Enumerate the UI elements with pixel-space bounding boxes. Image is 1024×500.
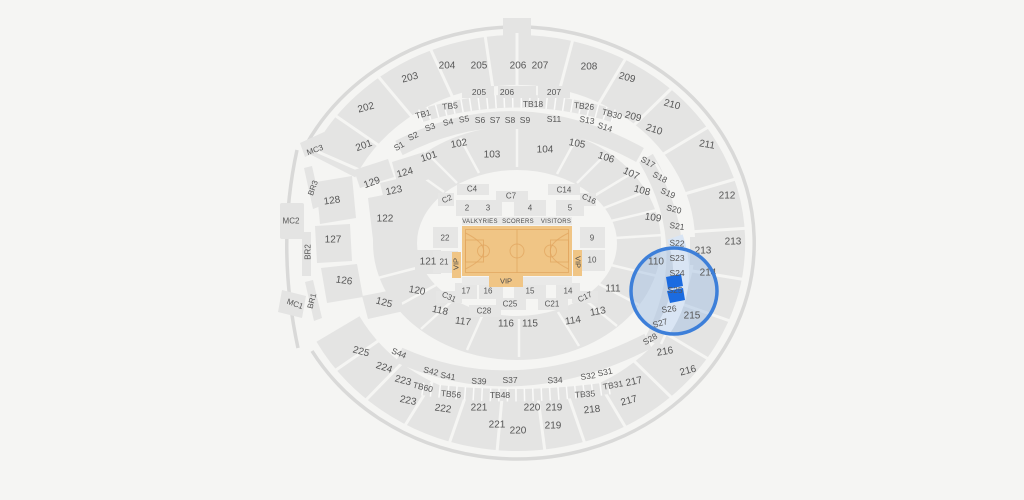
label-s34[interactable]: S34 [547,375,563,386]
label-s26[interactable]: S26 [661,303,677,315]
label-215[interactable]: 215 [684,311,701,322]
label-220-small[interactable]: 220 [524,403,541,414]
label-116[interactable]: 116 [498,319,514,330]
label-floor-5[interactable]: 5 [568,204,573,213]
label-221-small[interactable]: 221 [471,403,488,414]
label-s11[interactable]: S11 [547,114,562,124]
label-s24[interactable]: S24 [669,268,684,278]
label-br2[interactable]: BR2 [304,244,313,260]
label-206-outer[interactable]: 206 [510,61,527,72]
label-c21[interactable]: C21 [545,300,560,309]
label-110[interactable]: 110 [648,257,664,268]
label-205-inner[interactable]: 205 [472,87,486,97]
label-219-small[interactable]: 219 [546,403,563,414]
label-121[interactable]: 121 [420,257,437,268]
label-111[interactable]: 111 [605,284,621,295]
label-mc2[interactable]: MC2 [283,217,300,226]
label-s41[interactable]: S41 [440,370,457,383]
label-floor-22[interactable]: 22 [441,234,450,243]
label-205-outer[interactable]: 205 [471,61,488,72]
label-c14[interactable]: C14 [557,186,572,195]
label-floor-16[interactable]: 16 [484,287,493,296]
label-s8[interactable]: S8 [505,115,516,125]
label-204[interactable]: 204 [439,61,456,72]
label-floor-2[interactable]: 2 [465,204,470,213]
arena-left-wall [287,150,298,348]
label-221-big[interactable]: 221 [489,420,506,431]
label-floor-15[interactable]: 15 [526,287,535,296]
label-220-big[interactable]: 220 [510,426,527,437]
label-122[interactable]: 122 [377,214,394,225]
label-s5[interactable]: S5 [458,113,470,124]
label-s39[interactable]: S39 [471,376,487,387]
label-floor-14[interactable]: 14 [564,287,573,296]
label-s32[interactable]: S32 [580,370,597,382]
label-213-outer[interactable]: 213 [725,237,742,248]
label-s6[interactable]: S6 [475,115,486,125]
label-c28[interactable]: C28 [477,307,492,316]
label-tb26[interactable]: TB26 [573,100,595,112]
label-scorers: SCORERS [502,219,534,225]
label-s21[interactable]: S21 [669,220,686,232]
label-tb18[interactable]: TB18 [523,99,544,109]
label-vip-left[interactable]: VIP [452,258,461,270]
label-212[interactable]: 212 [719,191,736,202]
label-114[interactable]: 114 [564,314,582,327]
label-tb35[interactable]: TB35 [575,388,596,399]
label-vip-bottom[interactable]: VIP [500,277,512,286]
label-c25[interactable]: C25 [503,300,518,309]
label-tb56[interactable]: TB56 [440,388,462,400]
label-c7[interactable]: C7 [506,192,517,201]
label-floor-3[interactable]: 3 [486,204,491,213]
label-127[interactable]: 127 [325,235,342,246]
label-s9[interactable]: S9 [520,115,531,125]
label-103[interactable]: 103 [484,150,501,161]
seat-map-canvas: 204 205 206 207 208 203 209 202 210 201 … [0,0,1024,500]
label-s25-selected[interactable]: S25 [667,285,682,295]
label-floor-9[interactable]: 9 [590,234,595,243]
label-floor-4[interactable]: 4 [528,204,533,213]
label-104[interactable]: 104 [537,145,554,156]
label-vip-right[interactable]: VIP [574,256,583,268]
label-206-inner[interactable]: 206 [500,87,514,97]
label-s23[interactable]: S23 [669,253,684,263]
label-115[interactable]: 115 [522,319,538,330]
label-c4[interactable]: C4 [467,185,478,194]
label-tb48[interactable]: TB48 [490,390,511,400]
label-219-big[interactable]: 219 [545,421,562,432]
label-s7[interactable]: S7 [490,115,501,125]
label-117[interactable]: 117 [454,315,472,328]
court [452,217,582,287]
label-floor-10[interactable]: 10 [588,256,597,265]
label-s31[interactable]: S31 [597,365,614,378]
label-207-outer[interactable]: 207 [532,61,549,72]
label-218[interactable]: 218 [583,404,601,417]
seat-map: 204 205 206 207 208 203 209 202 210 201 … [0,0,1024,500]
label-floor-21[interactable]: 21 [440,258,449,267]
label-208[interactable]: 208 [581,62,598,73]
label-s37[interactable]: S37 [502,375,517,385]
label-floor-17[interactable]: 17 [462,287,471,296]
label-visitors: VISITORS [541,219,571,225]
label-207-inner[interactable]: 207 [547,87,561,97]
label-tb5[interactable]: TB5 [442,100,459,112]
label-home-team: VALKYRIES [462,219,498,225]
